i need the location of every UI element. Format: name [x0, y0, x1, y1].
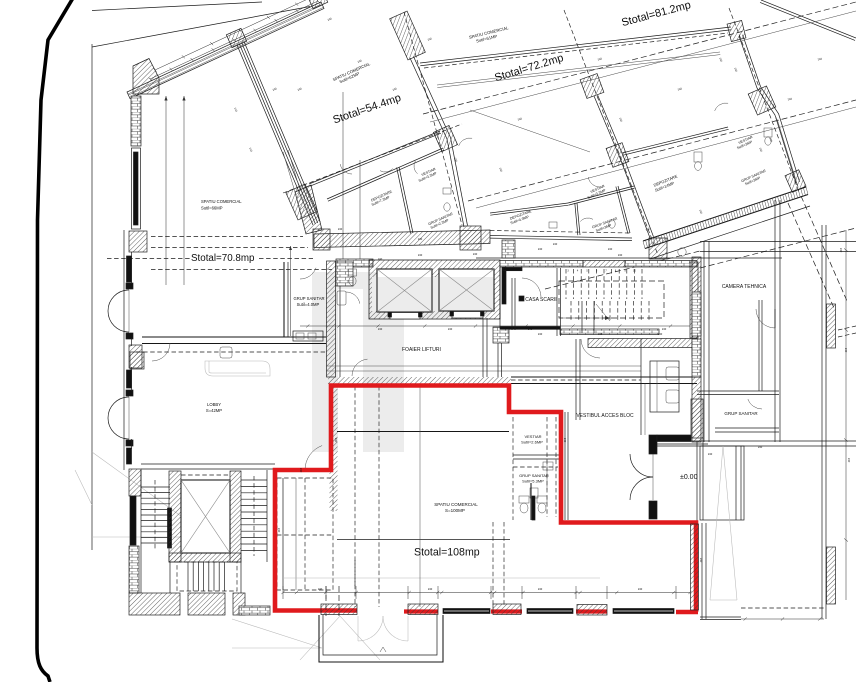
svg-text:240: 240 — [334, 438, 338, 443]
svg-text:Sutil=2.6MP: Sutil=2.6MP — [521, 440, 543, 445]
svg-text:240: 240 — [318, 587, 323, 591]
svg-text:Stotal=70.8mp: Stotal=70.8mp — [191, 253, 255, 264]
svg-text:240: 240 — [538, 587, 543, 591]
svg-text:240: 240 — [538, 332, 543, 336]
svg-text:240: 240 — [378, 257, 383, 261]
svg-text:GRUP SANITAR: GRUP SANITAR — [724, 411, 758, 416]
svg-text:240: 240 — [528, 327, 533, 331]
svg-text:Sutil=5.3MP: Sutil=5.3MP — [522, 479, 544, 484]
svg-text:240: 240 — [839, 248, 843, 253]
svg-text:Sutil=4.0MP: Sutil=4.0MP — [297, 302, 320, 307]
svg-text:240: 240 — [338, 227, 343, 231]
svg-text:240: 240 — [299, 468, 303, 473]
svg-text:240: 240 — [538, 247, 543, 251]
svg-text:240: 240 — [618, 253, 623, 257]
svg-text:±0.00: ±0.00 — [680, 474, 698, 481]
svg-text:240: 240 — [662, 327, 667, 331]
svg-text:240: 240 — [708, 452, 713, 456]
svg-text:240: 240 — [844, 348, 848, 353]
svg-text:GRUP SANITAR: GRUP SANITAR — [519, 473, 549, 478]
svg-text:240: 240 — [277, 528, 281, 533]
svg-text:240: 240 — [847, 458, 851, 463]
svg-text:240: 240 — [473, 252, 478, 256]
svg-text:240: 240 — [598, 332, 603, 336]
svg-text:240: 240 — [608, 247, 613, 251]
svg-text:Stotal=108mp: Stotal=108mp — [414, 547, 480, 559]
svg-text:S=42MP: S=42MP — [206, 408, 222, 413]
svg-text:240: 240 — [563, 438, 567, 443]
svg-text:240: 240 — [758, 445, 763, 449]
svg-text:LOBBY: LOBBY — [207, 402, 221, 407]
svg-text:SPATIU COMERCIAL: SPATIU COMERCIAL — [434, 502, 478, 507]
svg-text:240: 240 — [448, 327, 453, 331]
svg-text:240: 240 — [428, 587, 433, 591]
svg-text:FOAIER LIFTURI: FOAIER LIFTURI — [402, 347, 441, 353]
svg-text:240: 240 — [378, 327, 383, 331]
svg-text:VESTIAR: VESTIAR — [524, 434, 541, 439]
svg-text:240: 240 — [699, 558, 703, 563]
svg-text:240: 240 — [418, 237, 423, 241]
svg-text:240: 240 — [553, 242, 558, 246]
svg-text:GRUP SANITAR: GRUP SANITAR — [293, 296, 324, 301]
svg-text:SPATIU COMERCIAL: SPATIU COMERCIAL — [201, 199, 242, 204]
svg-text:Sutil=66MP: Sutil=66MP — [201, 206, 223, 211]
svg-text:240: 240 — [658, 332, 663, 336]
svg-text:S=100MP: S=100MP — [445, 508, 465, 513]
svg-text:CASA SCARII: CASA SCARII — [525, 297, 556, 303]
svg-text:CAMERA TEHNICA: CAMERA TEHNICA — [722, 284, 767, 290]
svg-text:240: 240 — [418, 253, 423, 257]
svg-text:VESTIBUL ACCES BLOC: VESTIBUL ACCES BLOC — [576, 413, 634, 419]
svg-text:240: 240 — [638, 587, 643, 591]
